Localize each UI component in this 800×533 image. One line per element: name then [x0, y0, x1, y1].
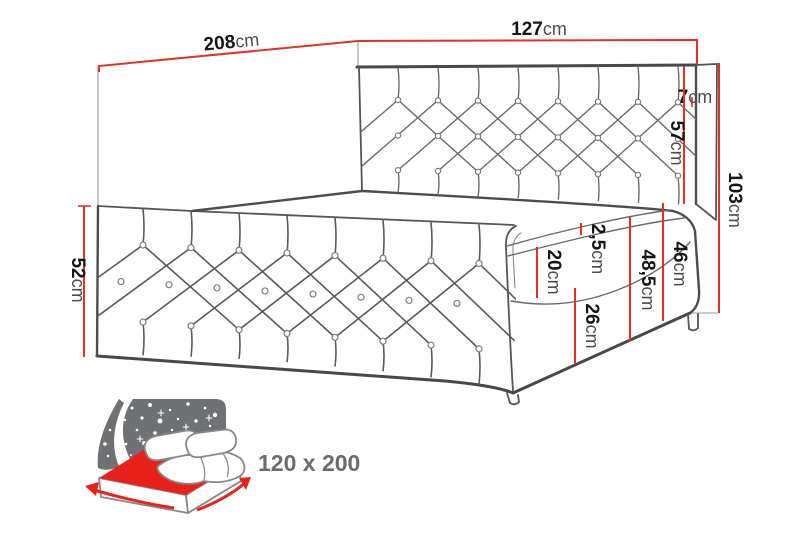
dimension-mattress-label: 20cm: [543, 249, 564, 294]
corner-seam-outer: [506, 226, 516, 391]
dimension-under-headboard-label: 46cm: [669, 241, 690, 286]
dimension-side-height: 52cm: [67, 206, 91, 357]
dimension-topper-label: 2,5cm: [587, 224, 608, 274]
bed-leg-right: [688, 314, 698, 330]
dimension-mattress-and-base-label: 48,5cm: [637, 250, 658, 311]
dimension-frame-width-label: 127cm: [511, 19, 567, 40]
dimension-headboard-depth-label: 7cm: [678, 87, 713, 108]
headboard-left-edge: [359, 67, 362, 191]
dimension-topper: 2,5cm: [581, 223, 608, 274]
size-badge-label: 120 x 200: [258, 450, 360, 476]
dimension-headboard-height-label: 57cm: [666, 120, 687, 165]
side-panel-left-edge: [97, 206, 98, 356]
side-panel-bottom-edge: [97, 356, 513, 393]
dimension-total-height: 103cm: [719, 63, 745, 313]
dimension-mattress-and-base: 48,5cm: [630, 217, 658, 341]
dimension-mattress: 20cm: [537, 247, 564, 298]
dimension-headboard-depth: 7cm: [678, 87, 713, 108]
dimension-headboard-height: 57cm: [666, 66, 687, 204]
dimension-total-height-label: 103cm: [724, 172, 745, 228]
mattress-top-rear-edge: [192, 191, 362, 211]
headboard-top-edge: [357, 65, 696, 67]
bed-size-icon: 120 x 200: [85, 399, 360, 513]
corner-seam-inner: [513, 233, 521, 288]
dimension-total-length: 208cm: [99, 29, 358, 72]
dimension-frame-width: 127cm: [358, 19, 697, 64]
diagram-canvas: 208cm 127cm 7cm 57cm 103cm 52cm 2,5cm 20…: [0, 0, 800, 533]
side-panel-top-edge: [98, 206, 514, 225]
dimension-side-height-label: 52cm: [67, 257, 88, 302]
extension-lines: [98, 41, 719, 313]
dimension-base-box-label: 26cm: [581, 303, 602, 348]
bed-dimension-diagram: 208cm 127cm 7cm 57cm 103cm 52cm 2,5cm 20…: [0, 0, 800, 533]
bed-leg-front: [507, 393, 519, 404]
